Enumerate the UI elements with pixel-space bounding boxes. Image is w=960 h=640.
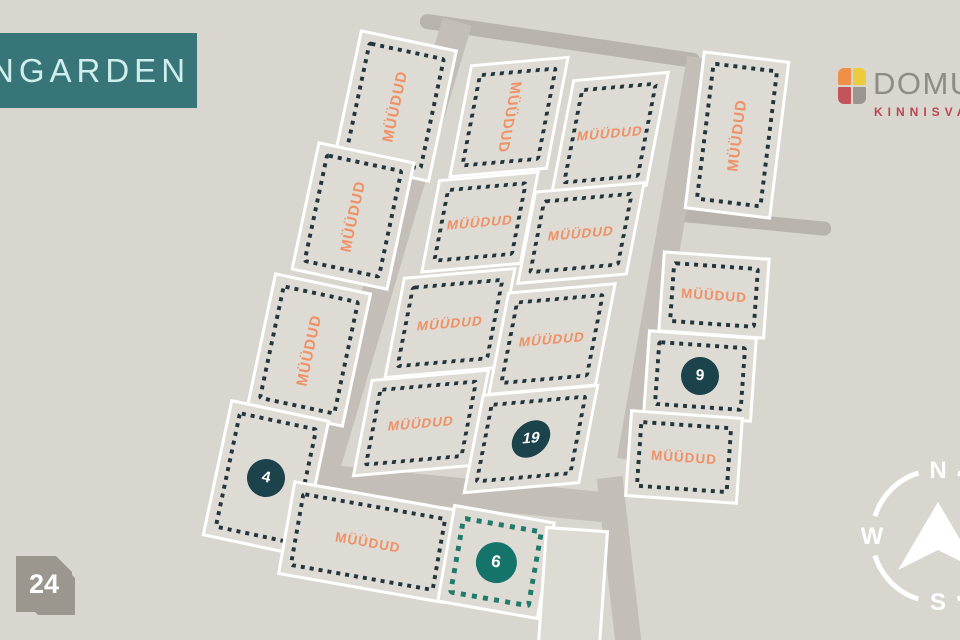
estate-logo: ANGARDEN <box>0 33 197 108</box>
plot-count-badge: 24 <box>16 556 72 612</box>
plot-number-badge-4[interactable]: 4 <box>243 455 288 500</box>
plot-number-badge-6[interactable]: 6 <box>472 538 519 585</box>
compass-label-south: S <box>930 589 946 616</box>
plot-available-9[interactable]: 9 <box>642 329 758 422</box>
plot-available-19[interactable]: 19 <box>462 384 599 494</box>
plot-R0-sold: MÜÜDUD <box>684 50 791 220</box>
plot-status-label: MÜÜDUD <box>660 254 767 337</box>
plot-status-label: MÜÜDUD <box>520 184 643 282</box>
compass-label-north: N <box>929 457 946 484</box>
plot-status-label: MÜÜDUD <box>553 74 666 192</box>
plot-number-badge-19[interactable]: 19 <box>508 419 553 460</box>
plot-status-label: MÜÜDUD <box>627 412 740 501</box>
logo-tile-gray <box>853 87 866 104</box>
logo-tile-red <box>838 87 851 104</box>
plot-status-label: MÜÜDUD <box>452 59 567 175</box>
site-plan-map: MÜÜDUD MÜÜDUD MÜÜDUD 4 MÜÜDUD 6 MÜÜDUD M… <box>0 0 960 640</box>
plot-C12-sold: MÜÜDUD <box>550 71 670 195</box>
logo-tile-yellow <box>853 68 866 85</box>
plot-B3-unmarked <box>537 526 609 640</box>
logo-tile-orange <box>838 68 851 85</box>
agency-name: DOMUS <box>873 66 960 102</box>
plot-C22-sold: MÜÜDUD <box>516 181 646 285</box>
compass-rose: N W S <box>838 426 960 640</box>
plot-R3-sold: MÜÜDUD <box>624 409 744 505</box>
plot-number-badge-9[interactable]: 9 <box>680 356 721 397</box>
plot-status-label: MÜÜDUD <box>687 54 787 217</box>
compass-north-arrow <box>898 502 960 570</box>
plot-C32-sold: MÜÜDUD <box>487 282 617 396</box>
agency-subtitle: KINNISVARA <box>874 105 960 119</box>
agency-logo: DOMUS KINNISVARA <box>838 64 960 134</box>
plot-status-label: MÜÜDUD <box>424 174 537 271</box>
plot-C11-sold: MÜÜDUD <box>448 56 570 179</box>
plot-R1-sold: MÜÜDUD <box>657 250 770 339</box>
agency-logo-icon <box>838 68 866 104</box>
badge-number: 24 <box>29 569 59 600</box>
plot-status-label: MÜÜDUD <box>491 285 614 392</box>
estate-logo-text: ANGARDEN <box>0 52 190 90</box>
plot-available-6[interactable]: 6 <box>436 504 556 621</box>
compass-label-west: W <box>861 523 884 550</box>
plot-status-label: MÜÜDUD <box>355 372 486 474</box>
